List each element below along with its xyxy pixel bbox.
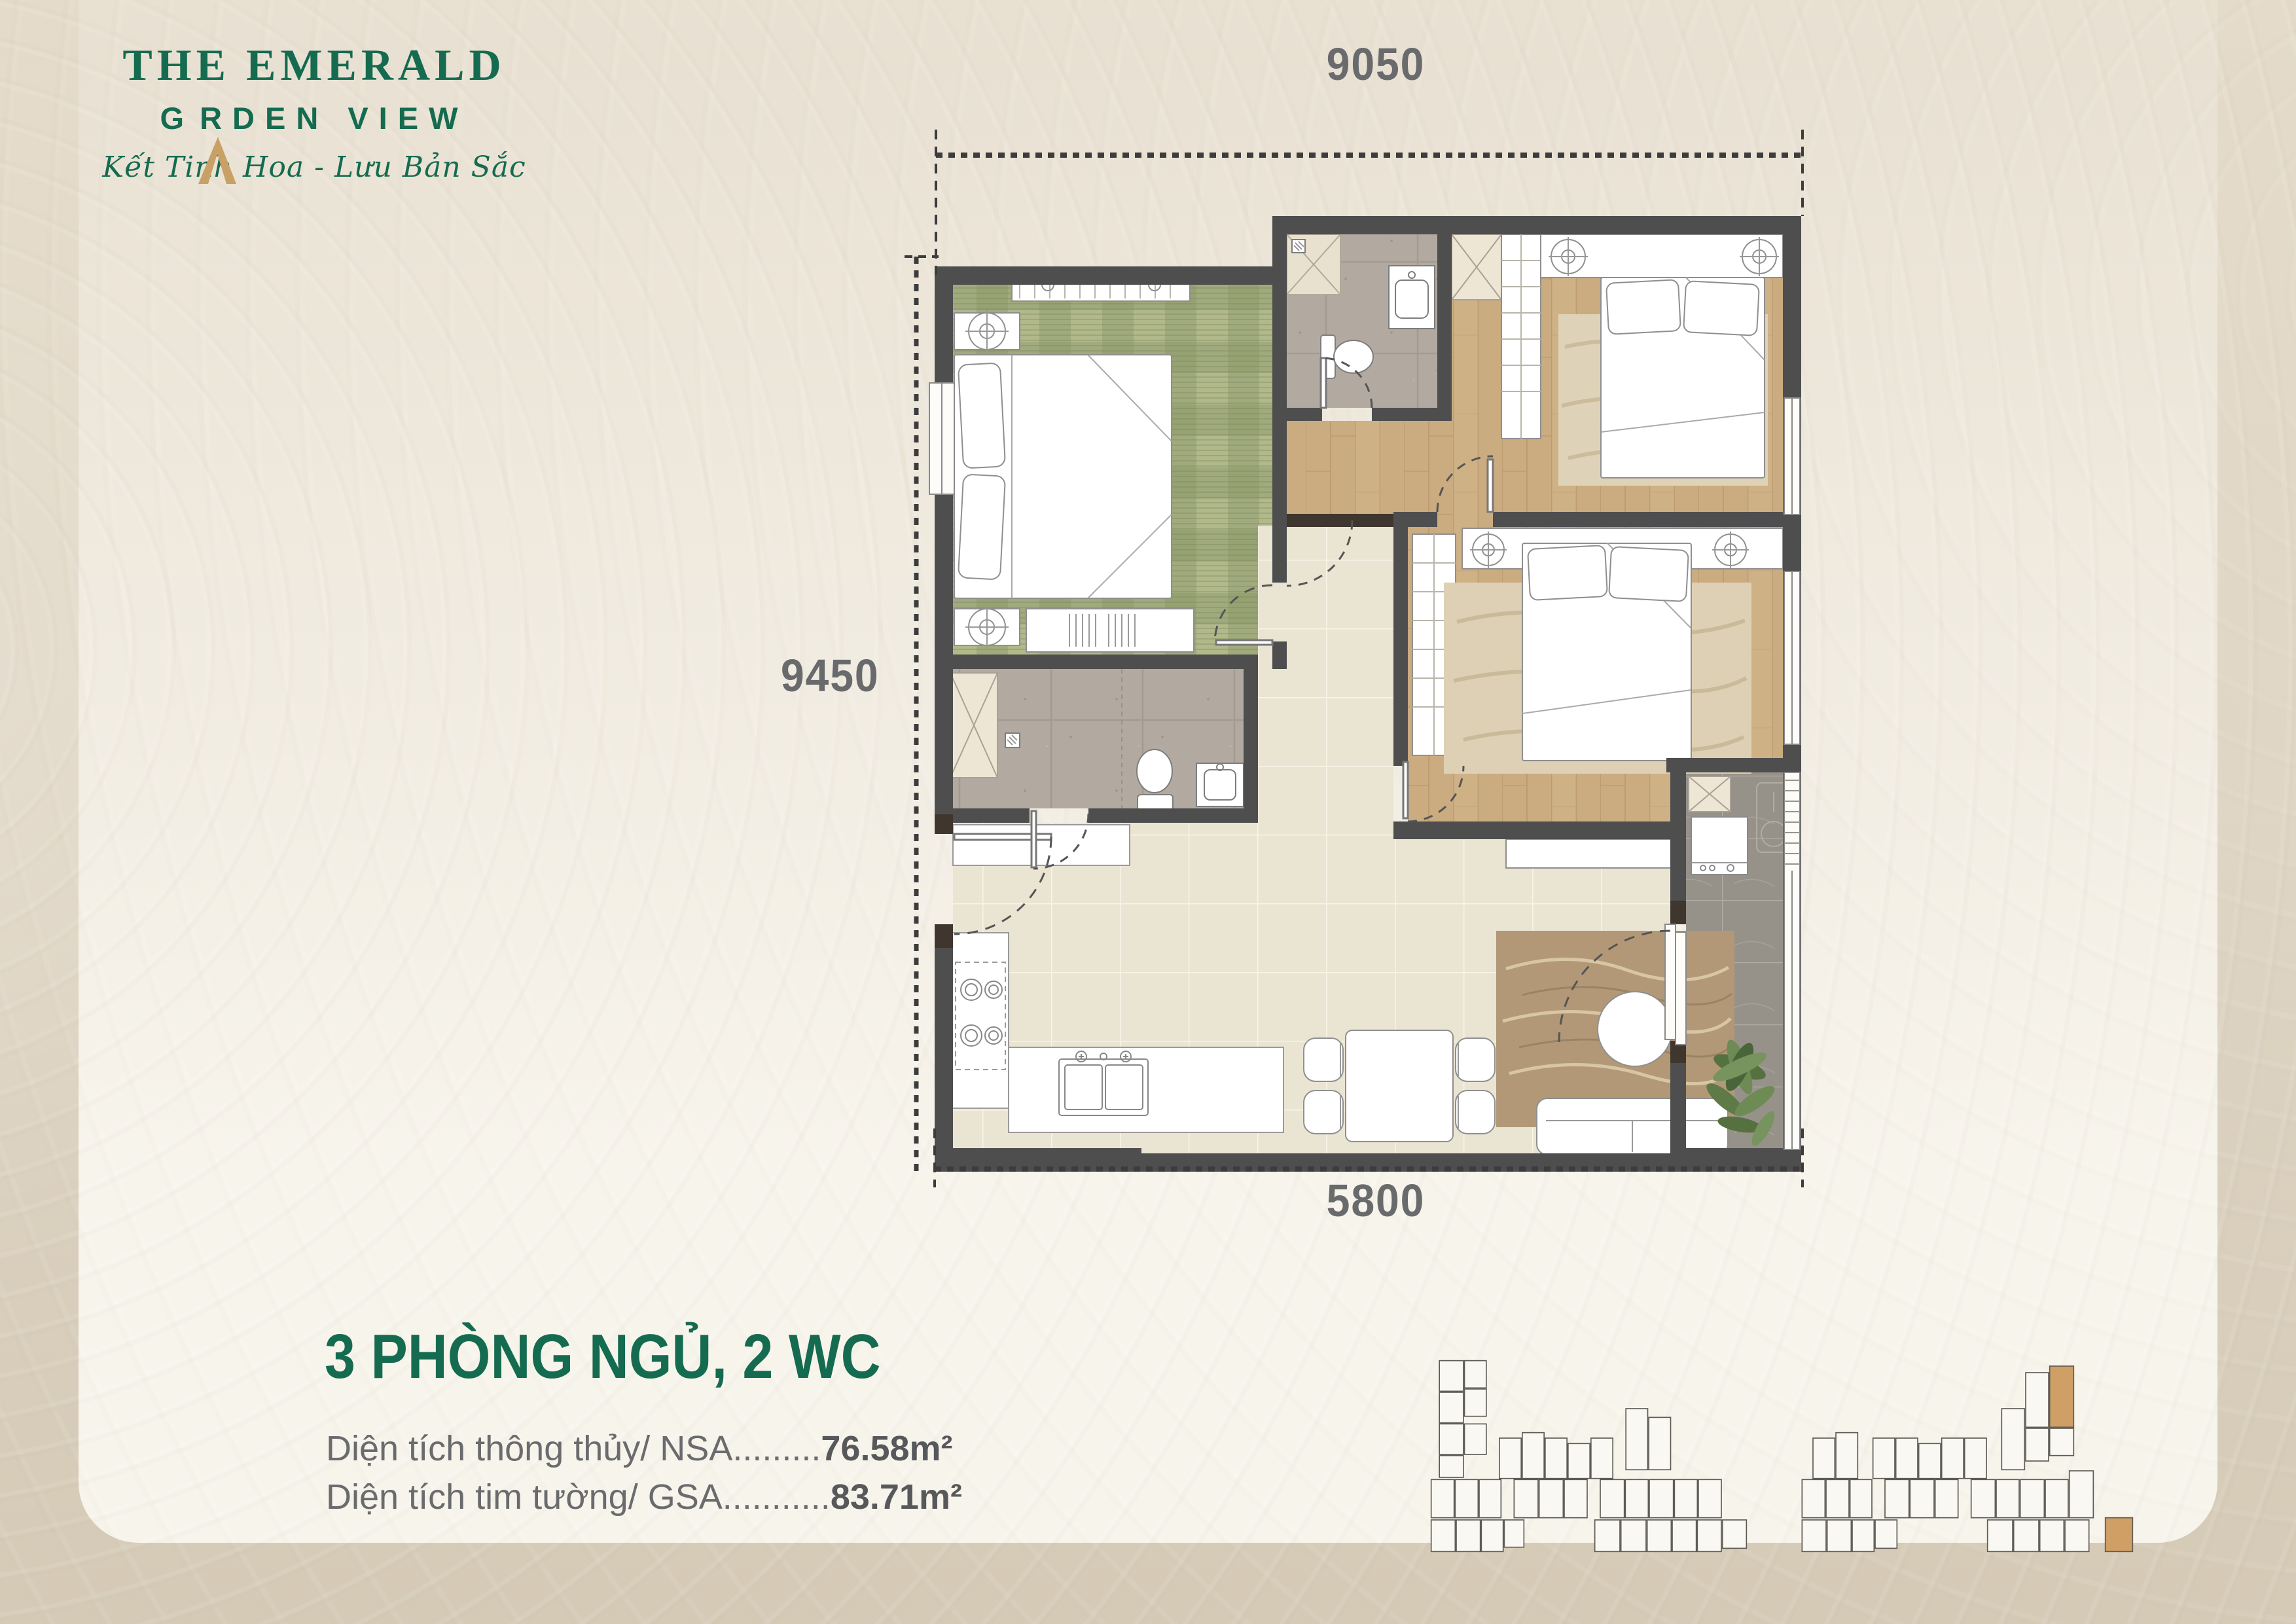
chair <box>1456 1091 1495 1134</box>
dim-label-bottom: 5800 <box>1310 1174 1442 1227</box>
highlighted-unit <box>2106 1518 2133 1552</box>
chair <box>1304 1038 1343 1081</box>
dots-leader: ......... <box>732 1429 821 1468</box>
window <box>1784 571 1800 744</box>
site-key-building-1 <box>1431 1361 1747 1552</box>
dim-label-top: 9050 <box>1310 38 1442 90</box>
dots-leader: ........... <box>723 1477 831 1517</box>
coffee-table <box>1598 992 1672 1066</box>
sofa <box>1537 1098 1728 1155</box>
brand-logo: THE EMERALD G RDEN VIEW Kết Tinh Hoa - L… <box>79 39 550 184</box>
dresser <box>1026 609 1194 652</box>
pillow <box>1609 547 1689 602</box>
unit-title: 3 PHÒNG NGỦ, 2 WC <box>325 1321 881 1393</box>
window <box>929 383 954 494</box>
brand-subname-rest: RDEN VIEW <box>200 100 468 136</box>
window <box>1784 398 1800 514</box>
counter <box>1009 1047 1283 1132</box>
area-value: 76.58m² <box>821 1429 952 1468</box>
area-row: Diện tích tim tường/ GSA...........83.71… <box>326 1473 962 1521</box>
unit-areas: Diện tích thông thủy/ NSA.........76.58m… <box>326 1424 962 1521</box>
brand-subname-g: G <box>160 100 195 136</box>
toilet <box>1137 749 1172 793</box>
site-key-building-2 <box>1802 1366 2132 1551</box>
pillow <box>1683 281 1759 336</box>
dining-table <box>1346 1030 1453 1142</box>
area-label: Diện tích tim tường/ GSA <box>326 1477 723 1517</box>
highlighted-unit <box>2050 1366 2074 1427</box>
pillow <box>1606 280 1681 334</box>
sliding-door <box>1665 924 1686 1045</box>
area-label: Diện tích thông thủy/ NSA <box>326 1429 732 1468</box>
brand-tagline: Kết Tinh Hoa - Lưu Bản Sắc <box>79 151 550 184</box>
pillow <box>1528 545 1607 600</box>
floor-plan <box>914 216 1804 1172</box>
brand-name: THE EMERALD <box>79 39 550 91</box>
corridor-floor <box>1287 421 1474 527</box>
chair <box>1456 1038 1495 1081</box>
toilet-tank <box>1138 795 1173 810</box>
shower-icon <box>1292 240 1305 253</box>
counter <box>951 933 1009 1108</box>
site-key-plans <box>1358 1356 2235 1553</box>
chair <box>1304 1091 1343 1134</box>
area-value: 83.71m² <box>831 1477 962 1517</box>
poster: THE EMERALD G RDEN VIEW Kết Tinh Hoa - L… <box>0 0 2296 1624</box>
washing-machine <box>1691 817 1748 875</box>
dim-label-left: 9450 <box>751 649 879 702</box>
entry-cabinet <box>953 825 1130 865</box>
bedroom-3 <box>1412 528 1783 774</box>
shower-icon <box>1005 733 1020 748</box>
window <box>1784 772 1800 1149</box>
brand-subname: G RDEN VIEW <box>79 100 550 136</box>
pillow <box>958 474 1005 579</box>
tv-console <box>1506 839 1671 868</box>
toilet <box>1334 340 1373 373</box>
pillow <box>958 363 1005 468</box>
area-row: Diện tích thông thủy/ NSA.........76.58m… <box>326 1424 962 1473</box>
